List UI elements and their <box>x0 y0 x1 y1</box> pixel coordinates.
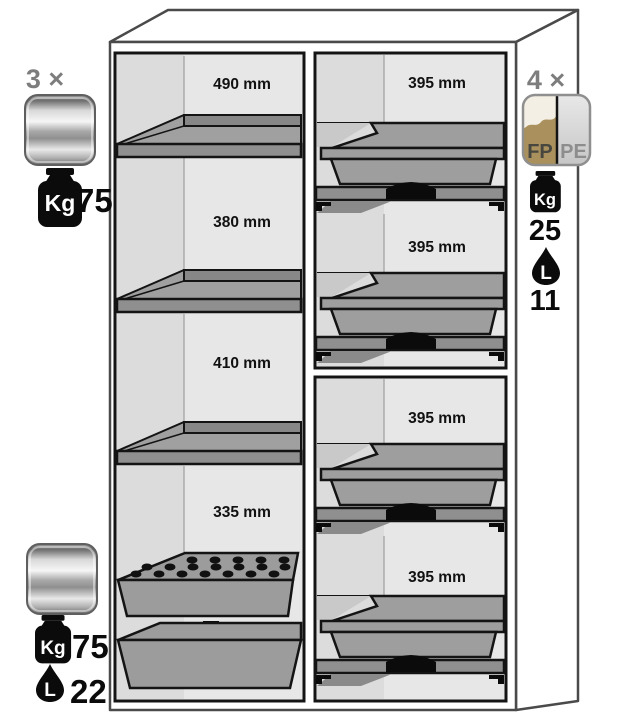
volume-unit-label: L <box>44 680 56 701</box>
pull-out-tray <box>316 273 504 363</box>
shelf-count-label: 3 × <box>26 64 64 94</box>
volume-capacity-value: 11 <box>530 285 561 317</box>
sump-tray <box>118 623 301 688</box>
dimension-label: 380 mm <box>213 214 271 231</box>
pull-out-tray <box>316 444 504 534</box>
weight-capacity-value: 75 <box>72 628 109 665</box>
weight-unit-label: Kg <box>45 190 76 216</box>
volume-capacity-value: 22 <box>70 673 107 710</box>
cabinet-diagram-canvas: 490 mm 380 mm 410 mm 335 mm 395 mm 395 m… <box>0 0 629 718</box>
dimension-label: 395 mm <box>408 569 466 586</box>
volume-unit-label: L <box>540 263 552 284</box>
stainless-insert-icon <box>27 544 97 614</box>
left-interior-column: 490 mm 380 mm 410 mm 335 mm <box>115 53 304 701</box>
fp-pe-material-icon: FP PE <box>523 95 590 165</box>
shelf-callout: 3 × Kg 75 <box>25 64 113 227</box>
dimension-label: 395 mm <box>408 75 466 92</box>
weight-capacity-value: 25 <box>529 215 561 247</box>
right-interior-upper-frame: 395 mm 395 mm <box>315 53 506 368</box>
right-interior-lower-frame: 395 mm 395 mm <box>315 377 506 701</box>
fp-material-label: FP <box>527 141 553 163</box>
dimension-label: 490 mm <box>213 76 271 93</box>
pull-out-tray <box>316 596 504 686</box>
dimension-label: 335 mm <box>213 504 271 521</box>
product-diagram: 490 mm 380 mm 410 mm 335 mm 395 mm 395 m… <box>0 0 629 718</box>
stainless-shelf-icon <box>25 95 95 165</box>
sump-callout: Kg 75 L 22 <box>27 544 109 710</box>
weight-unit-label: Kg <box>40 638 65 659</box>
pe-material-label: PE <box>560 141 587 163</box>
tray-count-label: 4 × <box>527 65 565 95</box>
pull-out-tray <box>316 123 504 213</box>
dimension-label: 395 mm <box>408 410 466 427</box>
cabinet-top-face <box>110 10 578 42</box>
dimension-label: 395 mm <box>408 239 466 256</box>
dimension-label: 410 mm <box>213 355 271 372</box>
weight-unit-label: Kg <box>534 191 556 209</box>
weight-capacity-value: 75 <box>76 182 113 219</box>
